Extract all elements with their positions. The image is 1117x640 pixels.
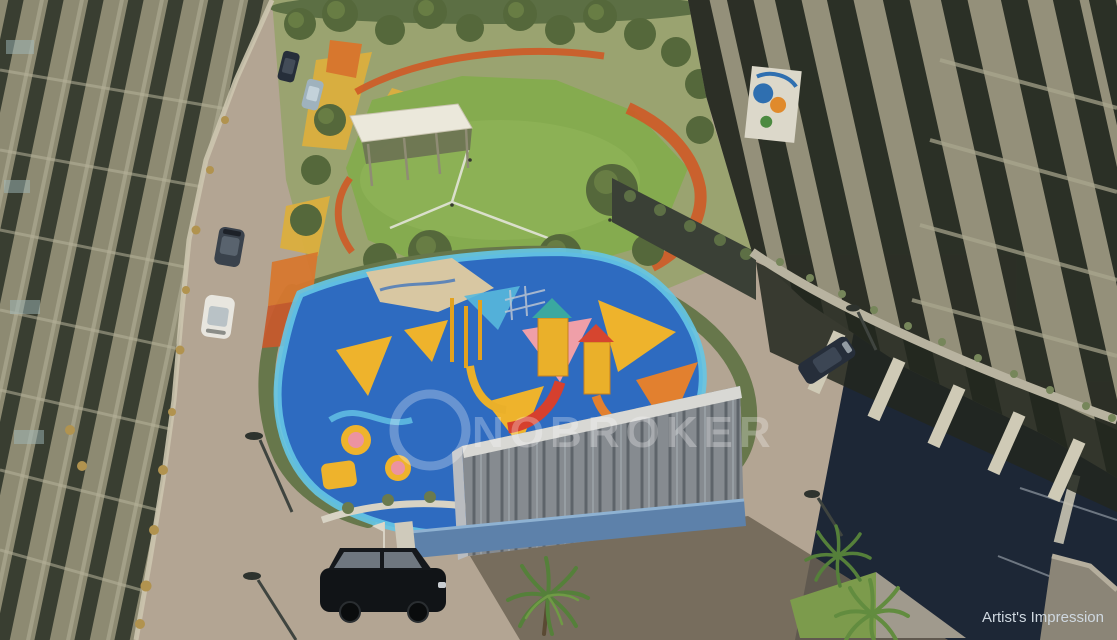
play-tower — [538, 318, 568, 376]
watermark-text: NOBROKER — [472, 408, 777, 457]
car-white-sedan — [200, 294, 236, 340]
artists-impression-label: Artist's Impression — [982, 609, 1104, 626]
park-canopy — [326, 40, 362, 78]
mural — [744, 66, 801, 143]
play-tower — [584, 342, 610, 394]
artist-impression-render: NOBROKER Artist's Impression — [0, 0, 1117, 640]
